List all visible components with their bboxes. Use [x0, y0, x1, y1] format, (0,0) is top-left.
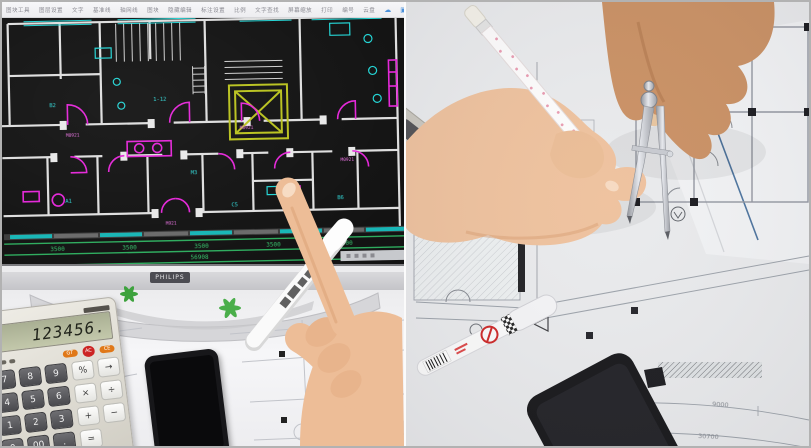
- corridor-lines: [416, 256, 809, 322]
- monitor-bezel: PHILIPS: [2, 264, 404, 290]
- circle-symbol: [671, 207, 685, 221]
- blueprint-sheet-top: [644, 20, 809, 264]
- circle-symbol-mark: [674, 212, 682, 218]
- key-dot: .: [52, 431, 76, 446]
- menu-item: 基准线: [93, 6, 111, 14]
- gt-key: GT: [62, 349, 78, 358]
- door-arc: [716, 112, 732, 128]
- dimension-box: [571, 142, 597, 186]
- stair-hatch: [642, 35, 688, 95]
- plan-block: [632, 23, 809, 206]
- door-arc: [446, 150, 718, 302]
- key-6: 6: [47, 386, 71, 408]
- hand-shadow: [606, 124, 766, 180]
- ce-key: CE: [99, 345, 114, 354]
- photo-collage: 图块工具 图层设置 文字 基准线 轴网线 图块 隐藏编辑 标注设置 比例 文字查…: [0, 0, 811, 448]
- compass-tip: [627, 216, 632, 224]
- hatch-area: [414, 150, 520, 300]
- smartphone-right: [521, 348, 724, 446]
- cad-menubar: 图块工具 图层设置 文字 基准线 轴网线 图块 隐藏编辑 标注设置 比例 文字查…: [2, 2, 404, 18]
- hand-shadow: [436, 177, 656, 237]
- compass-tip: [665, 231, 670, 240]
- key-3: 3: [50, 408, 74, 430]
- left-hand: [406, 88, 646, 245]
- pencil-eraser: [463, 4, 488, 30]
- dimension-bottom: 9000 30700: [572, 398, 809, 446]
- column-fill: [594, 371, 616, 392]
- pencil: [463, 4, 602, 166]
- menu-item: 隐藏编辑: [168, 6, 192, 14]
- key-0: 0: [2, 438, 25, 446]
- right-hand-shading: [638, 22, 664, 102]
- wall-section-bar: [518, 194, 525, 292]
- marker-pen-right: [413, 292, 560, 381]
- menu-item: 打印: [321, 6, 333, 14]
- calculator-keypad: 7 8 9 4 5 6 1 2 3 0 00 . % → × ÷: [2, 357, 126, 446]
- dimension-total-text: 30700: [698, 432, 719, 441]
- cad-floorplan: B2 1-12 M3 C5 A1 B6 M0921 M0921 M0921 M9…: [2, 18, 404, 264]
- compass-leg: [656, 106, 670, 232]
- calculator-key-0: 0: [408, 159, 419, 171]
- pencil-body: [481, 26, 588, 150]
- smartphone-screen: [149, 354, 224, 446]
- operator-keys: % → × ÷ + − =: [71, 356, 129, 446]
- compass-divider: [627, 81, 673, 240]
- compass-screw: [667, 151, 673, 157]
- cloud-icon: ☁: [384, 6, 391, 14]
- key-7: 7: [2, 369, 17, 391]
- right-hand: [602, 2, 775, 159]
- calculator: ▪▪▪▪▪ 123456. GT AC CE 7 8 9 4 5 6: [2, 296, 136, 446]
- no-symbol-logo: [479, 324, 501, 346]
- calculator-display-value: 123456.: [31, 316, 107, 344]
- column-marker: [632, 23, 809, 206]
- thumbnail: [644, 112, 663, 128]
- smartphone-body: [521, 348, 724, 446]
- key-8: 8: [18, 366, 42, 388]
- equals-key: =: [79, 428, 103, 446]
- menu-item: 云盘: [363, 6, 375, 14]
- menu-item: 比例: [234, 6, 246, 14]
- calculator-corner: 0: [406, 89, 460, 206]
- marker-small-text: [454, 343, 469, 355]
- marker-cap: [504, 292, 560, 334]
- left-thumb: [550, 130, 604, 178]
- column-fill: [644, 367, 666, 388]
- plus-key: +: [76, 405, 100, 427]
- pencil-ferrule: [476, 19, 492, 35]
- multiply-key: ×: [74, 382, 98, 404]
- key-9: 9: [44, 363, 68, 385]
- menu-item: 图层设置: [39, 6, 63, 14]
- key-2: 2: [24, 412, 48, 434]
- menu-item: 文字查找: [255, 6, 279, 14]
- smartphone: [144, 348, 231, 446]
- monitor-brand-logo: PHILIPS: [150, 272, 190, 283]
- menu-item: 文字: [72, 6, 84, 14]
- pencil-tip: [579, 142, 600, 164]
- hatch-strip: [658, 362, 762, 378]
- paper-vignette: [406, 2, 809, 446]
- flag-symbol: [534, 317, 548, 331]
- dimension-box-text: 7000: [573, 156, 583, 173]
- dimension-text: 9000: [712, 400, 729, 409]
- no-symbol-slash: [482, 327, 497, 342]
- column-marker: [586, 307, 638, 339]
- key-5: 5: [21, 389, 45, 411]
- sheet-fold: [656, 62, 724, 252]
- left-hand-shading: [466, 224, 598, 238]
- left-photo-panel: 图块工具 图层设置 文字 基准线 轴网线 图块 隐藏编辑 标注设置 比例 文字查…: [2, 2, 404, 446]
- divide-key: ÷: [99, 379, 123, 401]
- compass-leg: [627, 106, 654, 217]
- blueprint-scene: 2350 7000: [406, 2, 809, 446]
- key-1: 1: [2, 415, 22, 437]
- marker-checker-band: [500, 314, 518, 335]
- number-keys: 7 8 9 4 5 6 1 2 3 0 00 .: [2, 363, 77, 446]
- ac-key: AC: [82, 345, 96, 357]
- pencil-pattern: [491, 36, 583, 143]
- menu-item: 编号: [342, 6, 354, 14]
- menu-item: 标注设置: [201, 6, 225, 14]
- menu-item: 图块工具: [6, 6, 30, 14]
- compass-knob: [644, 81, 654, 91]
- compass-crossbar: [632, 145, 670, 155]
- compass-hinge: [641, 92, 657, 108]
- key-4: 4: [2, 392, 19, 414]
- screen-glare: [2, 18, 404, 264]
- marker-body: [415, 296, 556, 378]
- door-arc: [666, 188, 680, 202]
- key-00: 00: [27, 434, 51, 446]
- menu-item: 轴网线: [120, 6, 138, 14]
- backspace-key: →: [97, 356, 121, 378]
- cad-screen: B2 1-12 M3 C5 A1 B6 M0921 M0921 M0921 M9…: [2, 18, 404, 264]
- menu-item: 图块: [147, 6, 159, 14]
- pencil-lead: [592, 156, 598, 162]
- circle-symbol: [470, 324, 482, 336]
- dimension-text-vertical: 2350: [529, 226, 535, 240]
- barcode: [423, 350, 452, 372]
- right-photo-panel: 2350 7000: [406, 2, 809, 446]
- smartphone-screen: [533, 360, 712, 446]
- blueprint-sheet: [406, 2, 809, 446]
- fingernail: [604, 179, 621, 194]
- sheet-blue-edge: [704, 96, 758, 240]
- menu-item: 屏幕缩放: [288, 6, 312, 14]
- minus-key: −: [102, 402, 126, 424]
- percent-key: %: [71, 359, 95, 381]
- detail-box: [574, 120, 594, 136]
